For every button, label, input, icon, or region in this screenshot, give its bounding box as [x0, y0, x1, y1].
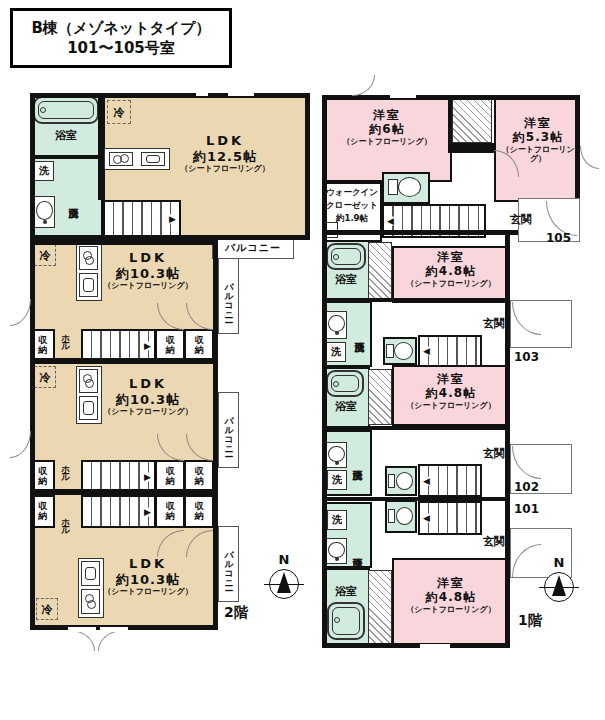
door-arc — [70, 630, 95, 651]
stairs-103: ◀ — [418, 335, 482, 367]
room-size: 約5.3帖 — [496, 130, 580, 144]
room-name: 洋室 — [398, 372, 504, 386]
stairs-105: ◀ — [382, 204, 486, 238]
entrance-101-label: 玄関 — [475, 534, 513, 549]
sink-icon — [325, 538, 347, 564]
kitchen-sink-icon — [141, 152, 165, 166]
sink-icon — [33, 196, 55, 228]
unit-101-label: 101 — [514, 502, 539, 516]
closet-hanger-icon — [368, 242, 392, 300]
closet-hanger-icon — [368, 369, 392, 425]
storage-label: 収納 — [37, 467, 48, 486]
window — [68, 627, 96, 632]
bathtub-icon — [326, 370, 364, 397]
shoebox-icon — [322, 222, 338, 238]
toilet-tank — [388, 179, 398, 195]
unit-102-label: 102 — [514, 480, 539, 494]
compass-needle — [552, 575, 566, 596]
entrance-105-label: 玄関 — [502, 212, 540, 227]
balcony-label: バルコニー — [222, 410, 235, 451]
toilet-icon — [388, 506, 414, 526]
room-size: 約10.3帖 — [92, 266, 204, 282]
compass-icon — [269, 569, 299, 599]
ldk-c-label: LDK 約10.3帖 （シートフローリング） — [92, 376, 204, 417]
room-size: 約6帖 — [330, 122, 444, 136]
closet-hanger-icon — [368, 570, 392, 644]
toilet-tank — [388, 509, 395, 523]
kitchen-counter — [104, 148, 170, 170]
washer-icon: 洗 — [326, 342, 346, 362]
wall — [98, 93, 103, 200]
balcony-label: バルコニー — [222, 276, 235, 317]
ldk-b-label: LDK 約10.3帖 （シートフローリング） — [92, 250, 204, 291]
stairs-arrow: ◀ — [422, 347, 431, 356]
stove-icon — [109, 152, 133, 166]
room-flooring: （シートフローリング） — [92, 587, 204, 597]
toilet-icon — [388, 176, 422, 198]
window — [390, 93, 416, 98]
door-arc — [98, 630, 123, 651]
compass-n-label: N — [276, 552, 292, 567]
room-name: LDK — [92, 250, 204, 266]
door-arc — [580, 146, 599, 169]
compass-icon — [544, 572, 574, 602]
room-name: LDK — [92, 556, 204, 572]
floor2-label: 2階 — [224, 604, 248, 622]
room-size: 約10.3帖 — [92, 392, 204, 408]
wic-line3: 約1.9帖 — [324, 212, 380, 225]
room-name: 洋室 — [496, 116, 580, 130]
bathtub-icon — [33, 96, 99, 124]
toilet-icon — [386, 341, 414, 361]
fridge-icon: 冷 — [107, 100, 131, 124]
wall — [322, 426, 510, 430]
ldk-a-label: LDK 約12.5帖 （シートフローリング） — [165, 133, 285, 174]
title-line1: B棟（メゾネットタイプ） — [31, 18, 210, 38]
storage: 収納 — [184, 495, 214, 528]
entrance-103-label: 玄関 — [475, 316, 513, 331]
fridge-icon: 冷 — [34, 366, 56, 388]
window — [228, 91, 254, 96]
balcony-d: バルコニー — [218, 526, 239, 602]
room-flooring: （シートフローリング） — [398, 401, 504, 411]
toilet-tank — [386, 344, 394, 358]
room-name: 洋室 — [398, 576, 504, 590]
stairs-arrow: ▶ — [168, 214, 177, 223]
stairs-arrow: ◀ — [422, 514, 431, 523]
stairs-arrow: ◀ — [386, 217, 395, 226]
compass-needle — [277, 572, 291, 593]
balcony-c: バルコニー — [218, 392, 239, 468]
sink-icon — [325, 442, 347, 468]
floorplan-page: B棟（メゾネットタイプ） 101〜105号室 浴室 洗 洗面所 冷 ▶ LDK … — [0, 0, 605, 720]
stairs-101: ◀ — [418, 501, 482, 535]
storage-label: 収納 — [37, 336, 48, 355]
room-flooring: （シートフローリング） — [165, 164, 285, 174]
ldk-d-label: LDK 約10.3帖 （シートフローリング） — [92, 556, 204, 597]
door-arc — [352, 75, 375, 96]
hall-label: ホール — [57, 500, 71, 544]
bedroom-48b-label: 洋室 約4.8帖 （シートフローリング） — [398, 372, 504, 410]
stairs-arrow: ▶ — [143, 507, 152, 516]
stairs-2f-d: ▶ — [81, 495, 156, 528]
room-size: 約4.8帖 — [398, 386, 504, 400]
stairs-2f-a: ▶ — [103, 200, 181, 237]
washer-icon: 洗 — [327, 470, 347, 490]
room-flooring: （シートフローリング） — [496, 145, 580, 164]
room-name: 洋室 — [330, 108, 444, 122]
storage-label: 収納 — [194, 502, 205, 521]
stairs-arrow: ◀ — [422, 476, 431, 485]
room-size: 約4.8帖 — [398, 264, 504, 278]
bedroom-48a-label: 洋室 約4.8帖 （シートフローリング） — [398, 250, 504, 288]
wall — [322, 497, 510, 501]
title-line2: 101〜105号室 — [67, 38, 175, 58]
title-box: B棟（メゾネットタイプ） 101〜105号室 — [10, 8, 232, 68]
wic-label: ウォークイン クローゼット 約1.9帖 — [324, 186, 380, 224]
stairs-arrow: ▶ — [143, 341, 152, 350]
storage: 収納 — [30, 495, 55, 528]
floor1-label: 1階 — [518, 612, 542, 630]
bathtub-icon — [327, 602, 365, 640]
wic-line2: クローゼット — [324, 199, 380, 212]
toilet-icon — [388, 471, 414, 491]
sink-icon — [325, 311, 347, 339]
balcony-a: バルコニー — [212, 237, 294, 259]
toilet-bowl — [394, 342, 413, 360]
bath-label: 浴室 — [324, 399, 368, 414]
window — [420, 644, 450, 649]
bath-label: 浴室 — [324, 584, 368, 599]
door-arc — [10, 299, 31, 326]
storage-label: 収納 — [165, 502, 176, 521]
bathtub-icon — [326, 243, 366, 270]
unit-103-label: 103 — [514, 350, 539, 364]
room-flooring: （シートフローリング） — [92, 407, 204, 417]
storage-label: 収納 — [37, 502, 48, 521]
toilet-bowl — [396, 507, 414, 525]
toilet-bowl — [396, 472, 414, 490]
fridge-icon: 冷 — [34, 244, 56, 266]
balcony-label: バルコニー — [222, 544, 235, 585]
stairs-102: ◀ — [418, 464, 482, 497]
room-flooring: （シートフローリング） — [398, 279, 504, 289]
compass-n-label: N — [551, 555, 567, 570]
unit-105-label: 105 — [546, 231, 571, 245]
room-size: 約10.3帖 — [92, 572, 204, 588]
stairs-arrow: ▶ — [143, 472, 152, 481]
storage: 収納 — [155, 495, 185, 528]
washroom-label: 洗面所 — [348, 524, 363, 576]
window — [100, 627, 128, 632]
door-arc — [10, 431, 31, 458]
bedroom-53-label: 洋室 約5.3帖 （シートフローリング） — [496, 116, 580, 164]
washer-icon: 洗 — [34, 161, 54, 181]
hall-label: ホール — [57, 316, 71, 360]
room-flooring: （シートフローリング） — [398, 605, 504, 615]
entrance-102-label: 玄関 — [475, 446, 513, 461]
storage-label: 収納 — [194, 467, 205, 486]
toilet-tank — [388, 474, 395, 488]
wall — [322, 298, 510, 302]
washroom-label: 洗面所 — [348, 436, 363, 488]
room-name: 洋室 — [398, 250, 504, 264]
wall — [450, 143, 494, 153]
bath-label: 浴室 — [324, 272, 368, 287]
washroom-label: 洗面所 — [64, 172, 79, 228]
wic-line1: ウォークイン — [324, 186, 380, 199]
bedroom-48c-label: 洋室 約4.8帖 （シートフローリング） — [398, 576, 504, 614]
storage-label: 収納 — [194, 336, 205, 355]
balcony-label: バルコニー — [225, 241, 281, 255]
washer-icon: 洗 — [327, 510, 347, 530]
hall-label: ホール — [57, 447, 71, 491]
washroom-label: 洗面所 — [350, 306, 365, 362]
room-flooring: （シートフローリング） — [330, 137, 444, 147]
fridge-icon: 冷 — [36, 598, 58, 620]
window — [196, 91, 208, 96]
room-name: LDK — [165, 133, 285, 149]
toilet-bowl — [398, 177, 421, 197]
room-name: LDK — [92, 376, 204, 392]
storage-label: 収納 — [165, 336, 176, 355]
room-flooring: （シートフローリング） — [92, 281, 204, 291]
closet-hanger-icon — [452, 97, 492, 143]
bedroom-6-label: 洋室 約6帖 （シートフローリング） — [330, 108, 444, 146]
room-size: 約12.5帖 — [165, 149, 285, 165]
balcony-b: バルコニー — [218, 258, 239, 334]
bath-label: 浴室 — [38, 128, 94, 143]
storage-label: 収納 — [165, 467, 176, 486]
room-size: 約4.8帖 — [398, 590, 504, 604]
